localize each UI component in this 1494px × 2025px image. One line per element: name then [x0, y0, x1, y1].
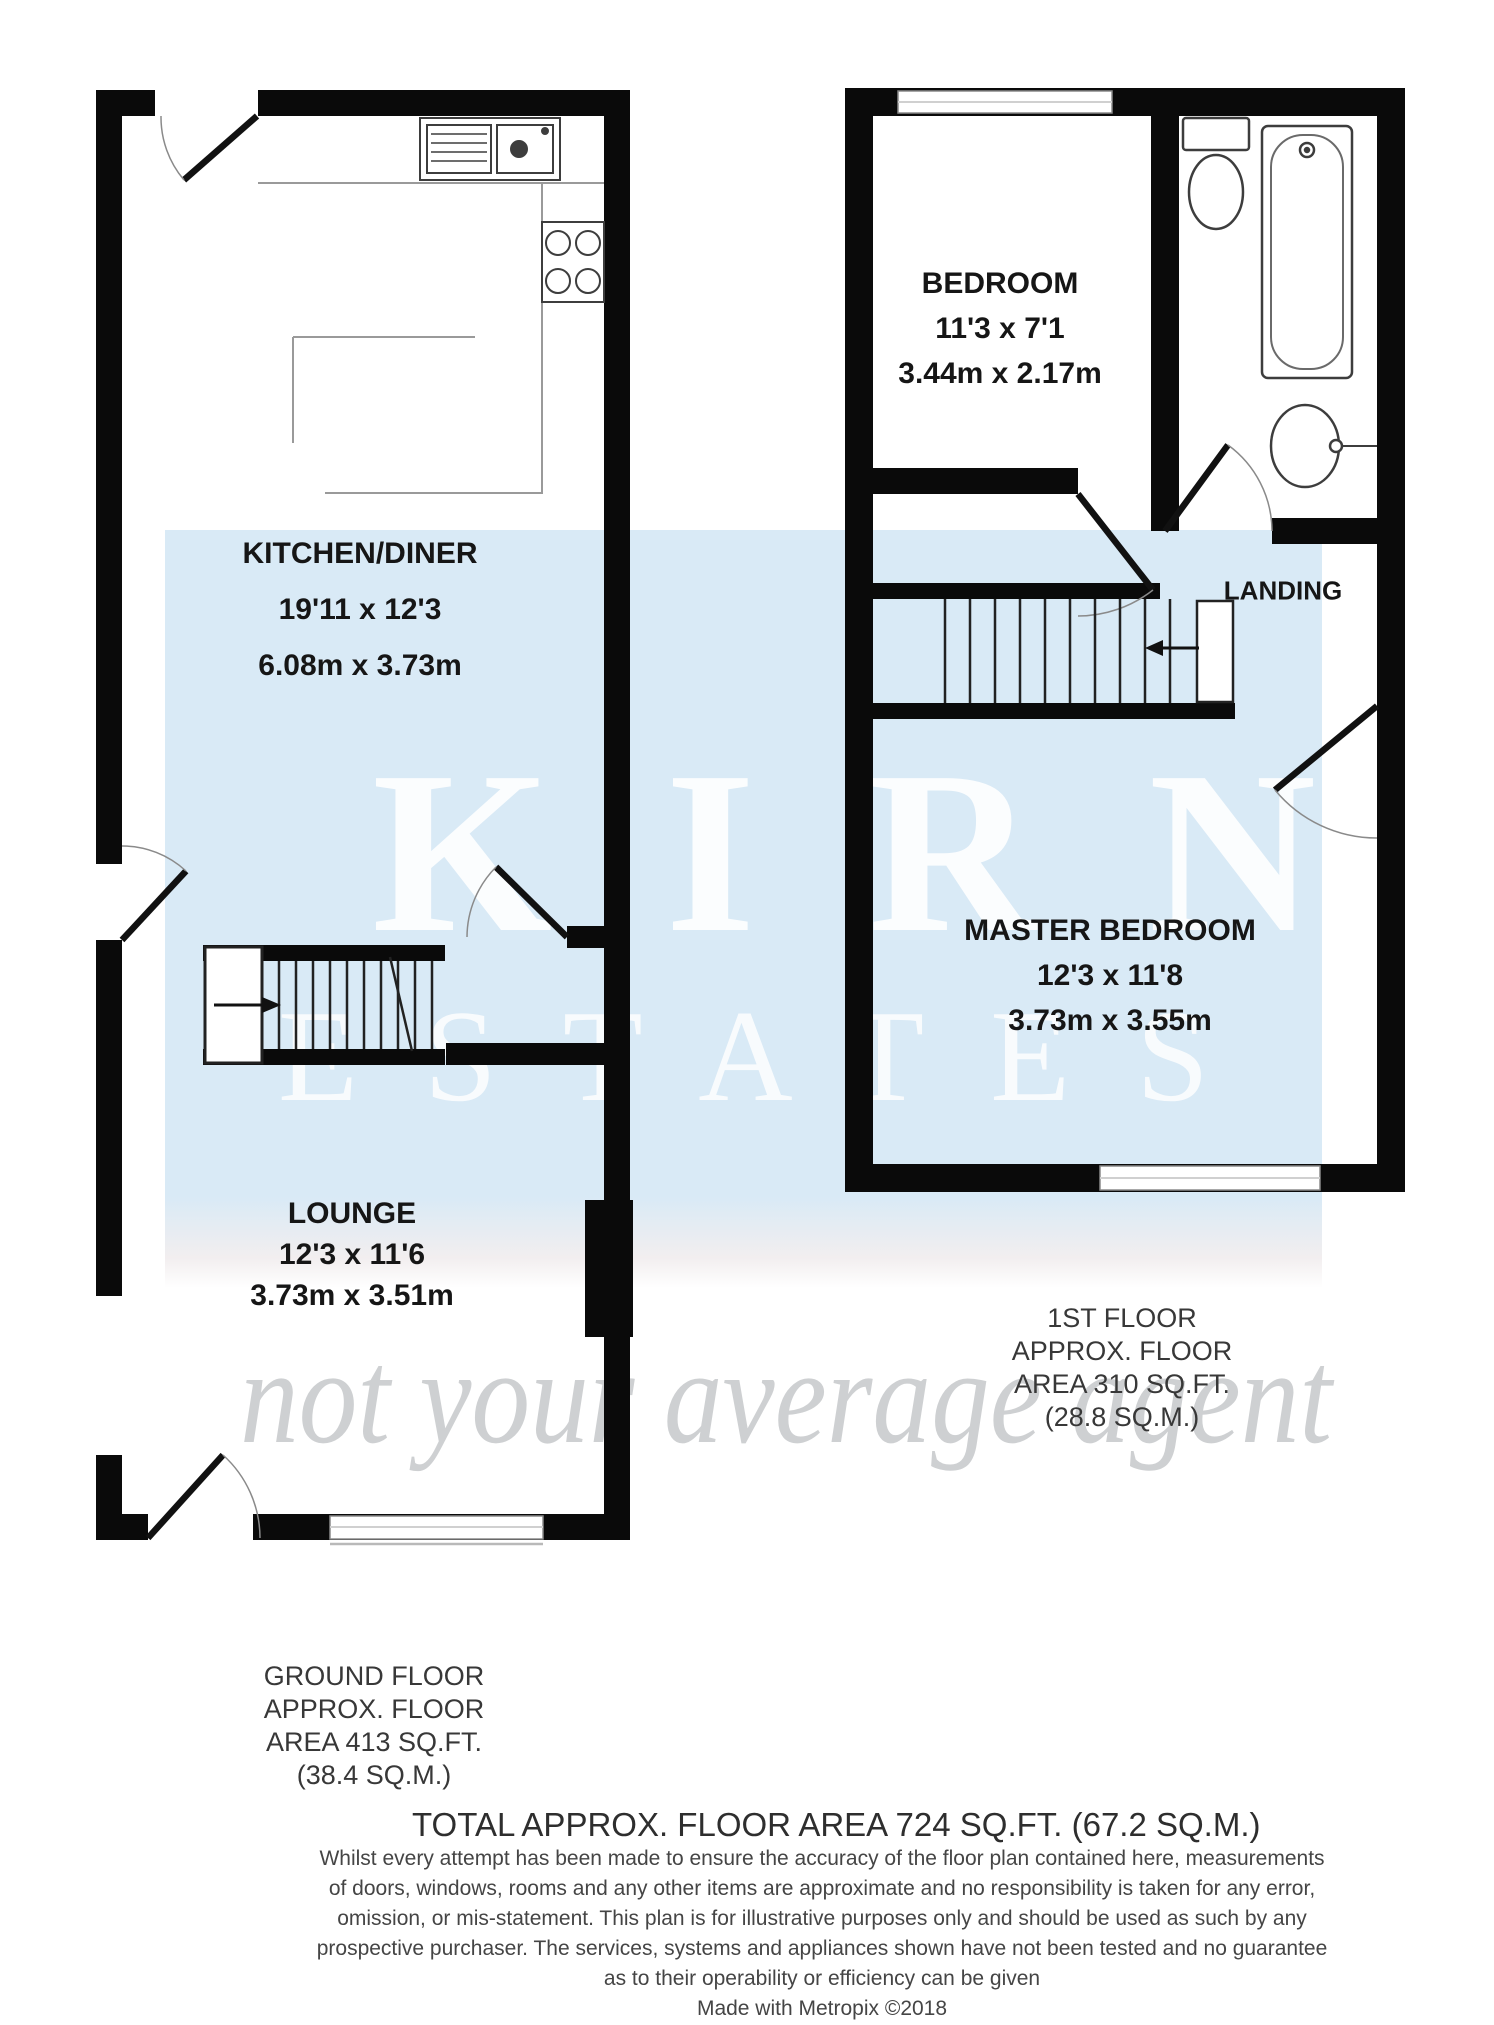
wall-segment — [1272, 518, 1377, 544]
first-floor-stairs — [945, 599, 1233, 703]
room-size-metric: 3.73m x 3.51m — [250, 1275, 453, 1316]
caption-line: AREA 413 SQ.FT. — [264, 1726, 485, 1759]
wall-segment — [446, 1043, 630, 1065]
caption-line: (28.8 SQ.M.) — [1012, 1401, 1233, 1434]
total-floor-area: TOTAL APPROX. FLOOR AREA 724 SQ.FT. (67.… — [412, 1806, 1261, 1844]
disclaimer-line: prospective purchaser. The services, sys… — [317, 1934, 1328, 1964]
first-floor-area-caption: 1ST FLOOR APPROX. FLOOR AREA 310 SQ.FT. … — [1012, 1302, 1233, 1434]
wall-segment — [96, 1514, 148, 1540]
toilet-fixture — [1183, 118, 1249, 229]
room-size-metric: 3.73m x 3.55m — [964, 998, 1256, 1043]
credit-line: Made with Metropix ©2018 — [317, 1994, 1328, 2024]
room-name: LOUNGE — [250, 1193, 453, 1234]
caption-line: GROUND FLOOR — [264, 1660, 485, 1693]
ground-floor-area-caption: GROUND FLOOR APPROX. FLOOR AREA 413 SQ.F… — [264, 1660, 485, 1792]
caption-line: AREA 310 SQ.FT. — [1012, 1368, 1233, 1401]
wall-segment — [1151, 116, 1179, 531]
room-size-metric: 6.08m x 3.73m — [242, 638, 477, 694]
caption-line: (38.4 SQ.M.) — [264, 1759, 485, 1792]
arrow-head-icon — [1145, 640, 1163, 656]
landing-label: LANDING — [1224, 576, 1342, 607]
door — [1165, 445, 1272, 531]
room-size-imperial: 12'3 x 11'6 — [250, 1234, 453, 1275]
kitchen-hob — [542, 222, 604, 302]
wall-segment — [1377, 88, 1405, 1192]
room-size-metric: 3.44m x 2.17m — [898, 351, 1101, 396]
kitchen-sink — [420, 118, 560, 180]
disclaimer-line: Whilst every attempt has been made to en… — [317, 1844, 1328, 1874]
disclaimer-line: omission, or mis-statement. This plan is… — [317, 1904, 1328, 1934]
master-bedroom-label: MASTER BEDROOM 12'3 x 11'8 3.73m x 3.55m — [964, 908, 1256, 1043]
room-name: MASTER BEDROOM — [964, 908, 1256, 953]
disclaimer-line: of doors, windows, rooms and any other i… — [317, 1874, 1328, 1904]
door — [161, 116, 257, 180]
room-name: BEDROOM — [898, 261, 1101, 306]
bath-fixture — [1262, 126, 1352, 378]
floorplan-drawing: KIRN ESTATES not your average agent — [0, 0, 1494, 2025]
room-size-imperial: 19'11 x 12'3 — [242, 582, 477, 638]
stair-base — [1197, 601, 1233, 702]
window — [1100, 1166, 1320, 1190]
wall-segment — [845, 88, 873, 1192]
caption-line: APPROX. FLOOR — [1012, 1335, 1233, 1368]
basin-fixture — [1271, 405, 1377, 487]
lounge-label: LOUNGE 12'3 x 11'6 3.73m x 3.51m — [250, 1193, 453, 1316]
room-size-imperial: 12'3 x 11'8 — [964, 953, 1256, 998]
wall-segment — [873, 583, 1160, 599]
room-name: KITCHEN/DINER — [242, 526, 477, 582]
disclaimer-line: as to their operability or efficiency ca… — [317, 1964, 1328, 1994]
door — [122, 846, 186, 940]
floorplan-page: KIRN ESTATES not your average agent — [0, 0, 1494, 2025]
room-size-imperial: 11'3 x 7'1 — [898, 306, 1101, 351]
wall-segment — [96, 90, 122, 864]
disclaimer-text: Whilst every attempt has been made to en… — [317, 1844, 1328, 2024]
caption-line: 1ST FLOOR — [1012, 1302, 1233, 1335]
wall-segment — [96, 940, 122, 1296]
caption-line: APPROX. FLOOR — [264, 1693, 485, 1726]
kitchen-diner-label: KITCHEN/DINER 19'11 x 12'3 6.08m x 3.73m — [242, 526, 477, 694]
wall-segment — [873, 703, 1235, 719]
wall-segment — [258, 90, 630, 116]
bedroom-label: BEDROOM 11'3 x 7'1 3.44m x 2.17m — [898, 261, 1101, 396]
wall-segment — [567, 926, 630, 948]
wall-segment — [873, 468, 1078, 494]
window — [898, 91, 1112, 113]
chimney-breast — [585, 1200, 633, 1337]
